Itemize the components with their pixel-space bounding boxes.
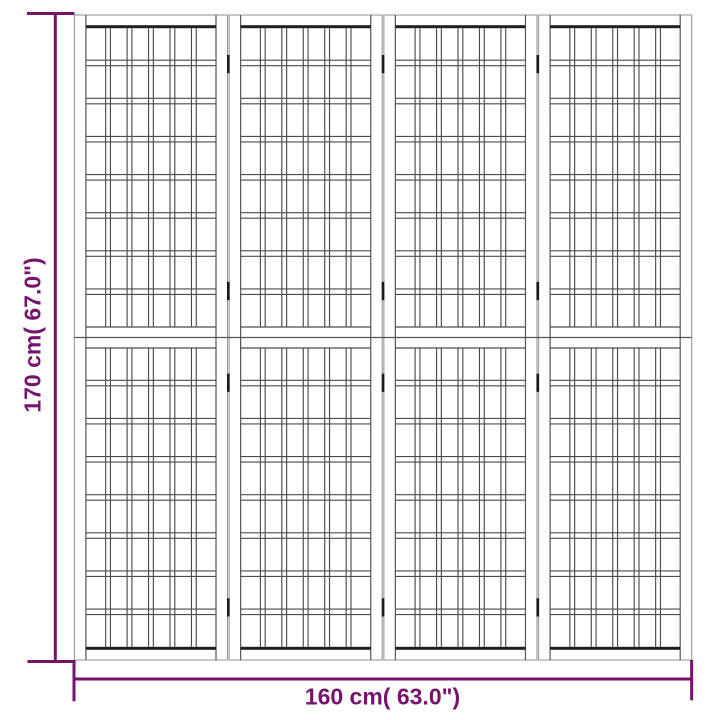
- svg-text:170 cm( 67.0"): 170 cm( 67.0"): [20, 257, 46, 412]
- svg-text:160 cm( 63.0"): 160 cm( 63.0"): [305, 684, 460, 710]
